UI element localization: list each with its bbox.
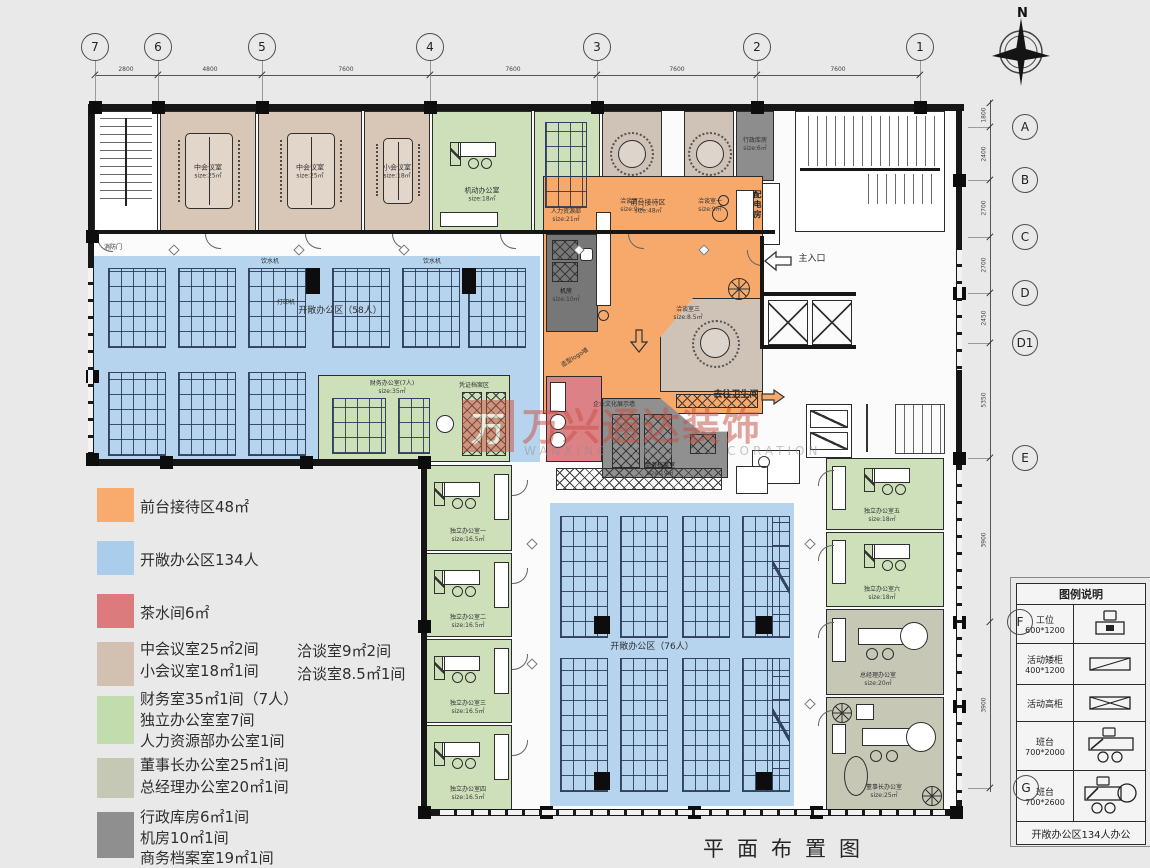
legend-table-row: 班台700*2000: [1017, 722, 1145, 771]
room-label: 洽谈室三: [676, 306, 700, 313]
elevator: [768, 300, 808, 345]
sink: [550, 432, 566, 448]
legend-item-name: 工位: [1036, 613, 1054, 626]
column: [756, 772, 772, 790]
dim-value: 3900: [981, 532, 988, 547]
dim-value: 3900: [981, 697, 988, 712]
column: [306, 268, 320, 294]
stair-landing: [800, 168, 940, 171]
archive-shelf: [612, 414, 640, 468]
chair: [465, 498, 476, 509]
low-cabinet-icon: [1088, 656, 1132, 672]
archive-shelf: [644, 414, 672, 468]
grid-col-bubble: 3: [583, 33, 611, 61]
legend-text: 洽谈室9㎡2间: [297, 640, 391, 661]
room-label: 独立办公室二: [450, 614, 486, 621]
room-size: size:6㎡: [743, 145, 767, 153]
dim-value: 7600: [505, 66, 520, 73]
stair-treads: [860, 174, 940, 204]
legend-text: 前台接待区48㎡: [140, 496, 249, 517]
room-label: 行政库房: [743, 137, 767, 144]
desk: [442, 656, 480, 671]
grid-row-label: D: [1020, 286, 1029, 300]
room-size: size:21㎡: [551, 216, 581, 224]
room-size: size:16.5㎡: [450, 622, 486, 630]
grid-row-bubble: E: [1012, 445, 1038, 471]
room-label: 中会议室: [194, 164, 222, 172]
grid-extension-line: [757, 60, 758, 104]
desk-return: [864, 544, 875, 568]
grid-row-bubble: A: [1012, 114, 1038, 140]
chair: [895, 560, 906, 571]
workstation-cluster: [402, 268, 460, 348]
grid-row-label: B: [1021, 173, 1029, 187]
legend-text: 小会议室18㎡1间: [140, 660, 259, 681]
grid-col-label: 2: [753, 40, 761, 54]
room-label: 小会议室: [383, 164, 411, 172]
desk-extension: [906, 722, 936, 752]
desk-return: [434, 656, 445, 680]
room-label: 总经理办公室: [860, 672, 896, 679]
grid-row-bubble: F: [1007, 609, 1033, 635]
room-size: size:20㎡: [860, 680, 896, 688]
room-size: size:35㎡: [370, 388, 415, 396]
archive-shelf: [690, 434, 716, 454]
sofa: [440, 212, 498, 227]
room-size: size:16.5㎡: [450, 794, 486, 802]
sink: [550, 414, 566, 430]
column: [594, 772, 610, 790]
north-compass-icon: N: [984, 4, 1058, 90]
wall-segment: [760, 345, 856, 349]
wall-segment: [88, 459, 428, 466]
desk: [872, 544, 910, 559]
stair-treads: [895, 404, 945, 454]
chair: [882, 648, 894, 660]
elevator: [812, 300, 852, 345]
workstation-cluster: [248, 372, 306, 456]
chair: [452, 498, 463, 509]
room-size: size:48㎡: [631, 208, 666, 216]
room-size: size:9㎡: [698, 206, 722, 214]
grid-row-label: A: [1021, 120, 1029, 134]
dim-value: 7600: [338, 66, 353, 73]
room-size: size:25㎡: [194, 173, 222, 181]
water-dispenser-label: 饮水机: [423, 258, 441, 265]
grid-row-bubble: D: [1012, 280, 1038, 306]
grid-row-label: E: [1021, 451, 1029, 465]
grid-extension-line: [262, 60, 263, 104]
desk: [442, 742, 480, 757]
room-size: size:8.5㎡: [673, 314, 702, 322]
room-size: size:18㎡: [465, 196, 500, 204]
room-size: size:18㎡: [383, 173, 411, 181]
grid-extension-line: [920, 60, 921, 104]
room-size: size:10㎡: [552, 296, 579, 304]
grid-col-bubble: 5: [248, 33, 276, 61]
dim-value: 2700: [981, 257, 988, 272]
workstation-cluster: [108, 268, 166, 348]
chair: [481, 158, 492, 169]
sink: [758, 456, 770, 468]
round-table: [618, 140, 646, 168]
grid-col-label: 6: [154, 40, 162, 54]
column: [152, 101, 165, 114]
grid-col-label: 5: [258, 40, 266, 54]
legend-table-row: 工位600*1200: [1017, 605, 1145, 644]
grid-col-bubble: 1: [906, 33, 934, 61]
cabinet-row: [556, 468, 722, 490]
legend-text: 总经理办公室20㎡1间: [140, 776, 289, 797]
dim-value: 7600: [669, 66, 684, 73]
column: [594, 616, 610, 634]
grid-extension-line: [95, 60, 96, 104]
stair-rail: [125, 118, 127, 206]
chair: [452, 758, 463, 769]
dim-value: 1800: [981, 107, 988, 122]
fire-door-label: 消防门: [104, 244, 122, 251]
open-office-76-label: 开敞办公区（76人）: [610, 642, 693, 652]
workstation-cluster: [108, 372, 166, 456]
desk: [442, 570, 480, 585]
legend-swatch-service: [97, 812, 134, 858]
decor-circle: [598, 310, 609, 321]
wc-arrow-icon: [760, 388, 786, 406]
room-label: 人力资源部: [551, 208, 581, 215]
column: [256, 101, 269, 114]
room-label: 商务档案室: [645, 462, 675, 469]
sofa: [832, 618, 846, 662]
chairs: [376, 144, 378, 196]
grid-extension-line: [597, 60, 598, 104]
escalator-flight: [810, 410, 848, 428]
chair: [866, 648, 878, 660]
column: [86, 230, 99, 243]
chairs: [280, 140, 282, 202]
rug: [844, 756, 868, 796]
room-label: 董事长办公室: [866, 784, 902, 791]
grid-col-label: 1: [916, 40, 924, 54]
column: [751, 101, 764, 114]
chair: [886, 750, 898, 762]
legend-item-name: 活动矮柜: [1027, 653, 1063, 666]
desk-extension: [900, 622, 928, 650]
desk-700-2000-icon: [1083, 726, 1137, 766]
entrance-label: 主入口: [798, 254, 825, 264]
room-size: size:18㎡: [864, 516, 900, 524]
workstation-cluster: [468, 268, 526, 348]
culture-wall-label: 企业文化展示墙: [593, 401, 635, 408]
executive-desk: [858, 628, 906, 645]
grid-row-label: C: [1021, 230, 1029, 244]
column: [953, 174, 966, 187]
legend-swatch-exec: [97, 758, 134, 798]
workstation-cluster: [398, 398, 430, 454]
dim-value: 7600: [830, 66, 845, 73]
grid-extension-line: [158, 60, 159, 104]
workstation-cluster: [620, 658, 668, 792]
cabinet: [462, 392, 482, 456]
grid-row-bubble: C: [1012, 224, 1038, 250]
plant: [922, 786, 942, 806]
room-size: size:16.5㎡: [450, 536, 486, 544]
dim-value: 2450: [981, 310, 988, 325]
grid-col-bubble: 7: [81, 33, 109, 61]
chair: [436, 415, 454, 433]
escalator-flight: [810, 432, 848, 450]
grid-row-label: F: [1017, 615, 1024, 629]
room-label: 财务办公室(7人): [370, 380, 415, 387]
legend-table-row: 班台700*2600: [1017, 771, 1145, 822]
grid-row-bubble: D1: [1012, 330, 1038, 356]
wall-segment: [88, 104, 964, 111]
column: [86, 453, 99, 466]
room-label: 机房: [560, 288, 572, 295]
water-dispenser-label: 饮水机: [261, 258, 279, 265]
sofa: [494, 734, 509, 780]
desk-700-2600-icon: [1081, 775, 1139, 817]
plan-title: 平面布置图: [703, 833, 873, 863]
legend-swatch-office-green: [97, 696, 134, 744]
legend-text: 董事长办公室25㎡1间: [140, 754, 289, 775]
chair: [895, 484, 906, 495]
cabinet: [486, 392, 506, 456]
right-dimension-line: [990, 100, 991, 792]
desk-return: [450, 142, 461, 166]
legend-item-name: 班台: [1036, 735, 1054, 748]
column: [950, 806, 963, 819]
chair: [882, 560, 893, 571]
compass-north-label: N: [1017, 6, 1028, 21]
legend-swatch-meeting: [97, 642, 134, 686]
wall-segment: [95, 230, 775, 234]
legend-text: 中会议室25㎡2间: [140, 638, 259, 659]
voucher-area-label: 凭证档案区: [459, 382, 489, 389]
room-size: size:25㎡: [866, 792, 902, 800]
grid-col-bubble: 2: [743, 33, 771, 61]
sofa: [832, 540, 846, 584]
room-label: 独立办公室一: [450, 528, 486, 535]
column: [300, 456, 313, 469]
room-size: size:18㎡: [864, 594, 900, 602]
desk-return: [434, 482, 445, 506]
to-wc-label: 去往卫生间: [713, 390, 758, 400]
chairs: [340, 140, 342, 202]
chair: [452, 672, 463, 683]
grid-col-bubble: 6: [144, 33, 172, 61]
workstation-cluster: [178, 372, 236, 456]
chair: [870, 750, 882, 762]
room-label: 独立办公室六: [864, 586, 900, 593]
desk: [872, 468, 910, 483]
stair-rail: [866, 404, 868, 452]
window-strip: [957, 250, 962, 370]
reception-desk: [596, 212, 611, 306]
room-size: size:19㎡: [645, 470, 675, 478]
room-label: 独立办公室五: [864, 508, 900, 515]
column: [462, 268, 476, 294]
legend-item-size: 700*2000: [1025, 748, 1065, 757]
column: [418, 806, 431, 819]
top-dimension-line: [95, 75, 920, 76]
column: [418, 456, 431, 469]
chairs: [178, 140, 180, 202]
tall-cabinet-icon: [1088, 695, 1132, 711]
room-label: 独立办公室四: [450, 786, 486, 793]
round-table: [696, 140, 724, 168]
plant: [728, 278, 750, 300]
room-label: 洽谈室一: [698, 198, 722, 205]
room-size: size:25㎡: [296, 173, 324, 181]
legend-item-name: 活动高柜: [1027, 697, 1063, 710]
room-label: 前台接待区: [631, 199, 666, 207]
desk-return: [434, 570, 445, 594]
window-strip: [440, 810, 945, 815]
dim-value: 2400: [981, 146, 988, 161]
legend-table: 图例说明 工位600*1200 活动矮柜400*1200 活动高柜 班台700*…: [1016, 583, 1146, 845]
legend-text: 财务室35㎡1间（7人）: [140, 688, 298, 709]
desk-return: [864, 468, 875, 492]
floor-plan-page: { "meta": { "title": "平面布置图", "compass_n…: [0, 0, 1150, 862]
dim-value: 2700: [981, 200, 988, 215]
grid-row-label: D1: [1017, 336, 1034, 350]
legend-text: 洽谈室8.5㎡1间: [297, 663, 405, 684]
stair-treads: [800, 116, 940, 166]
sofa: [494, 562, 509, 608]
column: [418, 620, 431, 633]
chair: [465, 672, 476, 683]
legend-text: 独立办公室室7间: [140, 709, 255, 730]
legend-table-row: 活动高柜: [1017, 685, 1145, 722]
printer-label: 打印机: [277, 299, 295, 306]
sofa: [832, 724, 846, 754]
window-strip: [957, 470, 962, 800]
chairs: [418, 144, 420, 196]
column: [914, 101, 927, 114]
grid-extension-line: [430, 60, 431, 104]
room-size: size:16.5㎡: [450, 708, 486, 716]
workstation-cluster: [620, 516, 668, 638]
chair: [882, 484, 893, 495]
workstation-cluster: [178, 268, 236, 348]
desk-return: [434, 742, 445, 766]
dim-value: 5350: [981, 392, 988, 407]
down-arrow-icon: [630, 328, 648, 354]
legend-text: 机房10㎡1间: [140, 827, 229, 848]
wall-segment: [760, 292, 856, 296]
grid-col-label: 7: [91, 40, 99, 54]
workstation-cluster: [545, 122, 587, 208]
legend-text: 茶水间6㎡: [140, 602, 210, 623]
wall-segment: [421, 459, 427, 816]
sofa: [494, 648, 509, 694]
column: [424, 101, 437, 114]
grid-row-bubble: B: [1012, 167, 1038, 193]
chair: [452, 586, 463, 597]
legend-swatch-tea: [97, 594, 134, 628]
dim-value: 4800: [202, 66, 217, 73]
legend-table-title: 图例说明: [1017, 584, 1145, 605]
round-table: [700, 328, 730, 358]
legend-text: 开敞办公区134人: [140, 549, 259, 570]
room-label: 中会议室: [296, 164, 324, 172]
column: [591, 101, 604, 114]
open-office-58-label: 开敞办公区（58人）: [298, 306, 381, 316]
workstation-cluster: [682, 516, 730, 638]
legend-text: 行政库房6㎡1间: [140, 806, 249, 827]
plant: [832, 703, 852, 723]
workstation-icon: [1090, 609, 1130, 639]
sofa: [832, 466, 846, 510]
column: [160, 456, 173, 469]
legend-swatch-open-office: [97, 541, 134, 575]
workstation-cluster: [332, 398, 386, 454]
column: [756, 616, 772, 634]
legend-table-row: 活动矮柜400*1200: [1017, 644, 1145, 685]
counter: [550, 382, 566, 412]
grid-col-label: 3: [593, 40, 601, 54]
room-label: 机动办公室: [465, 187, 500, 195]
grid-row-label: G: [1021, 781, 1030, 795]
legend-table-footer: 开敞办公区134人办公: [1017, 822, 1145, 844]
sofa: [494, 474, 509, 520]
utility-room: [736, 466, 768, 494]
window-strip: [88, 268, 93, 453]
room-label: 独立办公室三: [450, 700, 486, 707]
server-rack: [552, 262, 578, 282]
executive-desk: [862, 728, 912, 746]
workstation-cluster: [682, 658, 730, 792]
chairs: [238, 140, 240, 202]
column: [89, 101, 102, 114]
chair: [468, 158, 479, 169]
grid-row-bubble: G: [1013, 775, 1039, 801]
entrance-arrow-icon: [763, 250, 793, 272]
locker-column: [772, 516, 790, 638]
legend-text: 人力资源部办公室1间: [140, 730, 285, 751]
room-label: 配电房: [753, 190, 762, 220]
grid-col-bubble: 4: [416, 33, 444, 61]
chair: [465, 758, 476, 769]
legend-swatch-reception: [97, 488, 134, 522]
legend-text: 商务档案室19㎡1间: [140, 847, 274, 868]
desk: [458, 142, 496, 157]
legend-item-size: 400*1200: [1025, 666, 1065, 675]
chair: [465, 586, 476, 597]
grid-col-label: 4: [426, 40, 434, 54]
locker-column: [772, 658, 790, 792]
dim-value: 2800: [118, 66, 133, 73]
column: [953, 452, 966, 465]
desk: [442, 482, 480, 497]
side-table: [856, 704, 874, 720]
